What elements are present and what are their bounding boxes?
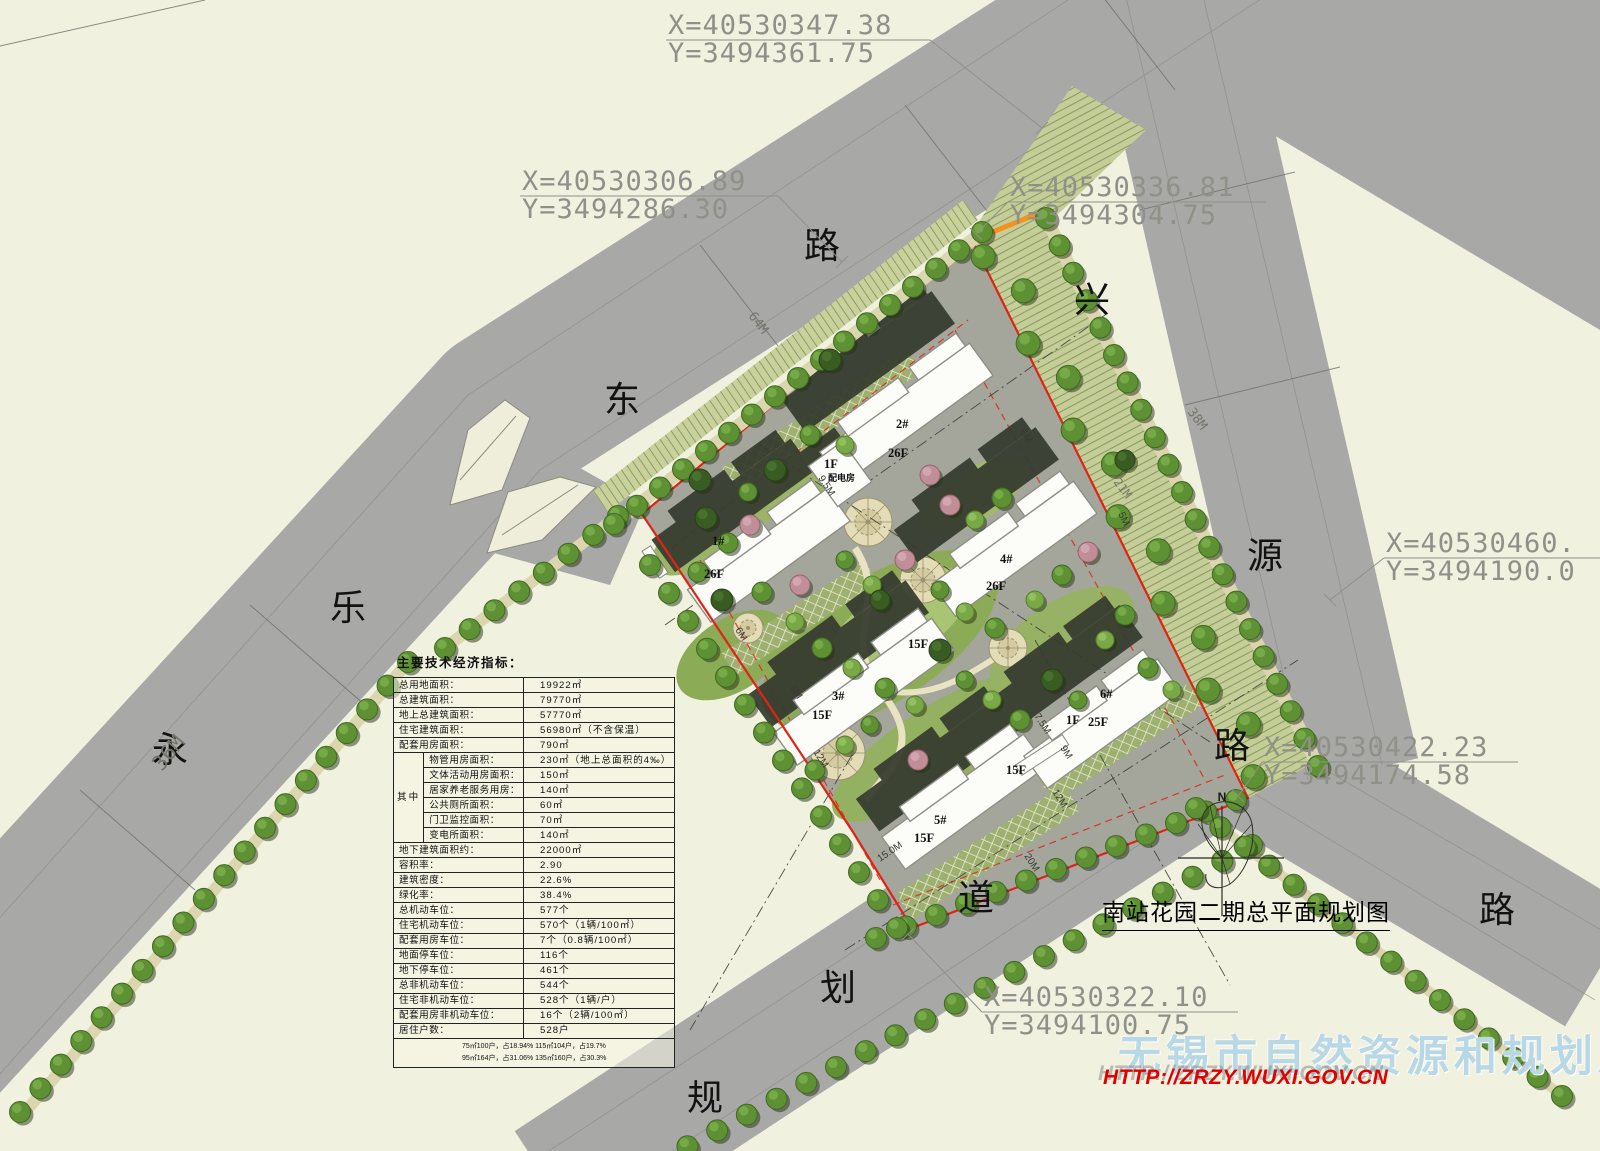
building-6-floors: 25F: [1088, 715, 1109, 729]
table-cell: 住宅机动车位：: [394, 918, 524, 933]
road-char: 路: [1479, 890, 1515, 930]
table-cell: 60㎡: [524, 798, 675, 813]
table-row: 地下建筑面积约：22000㎡: [394, 843, 675, 858]
table-cell: 居住户数：: [394, 1023, 524, 1038]
table-cell: 19922㎡: [524, 678, 675, 693]
table-cell: 57770㎡: [524, 708, 675, 723]
table-row: 配套用房车位：7个（0.8辆/100㎡）: [394, 933, 675, 948]
table-cell: 容积率：: [394, 858, 524, 873]
table-row: 总用地面积：19922㎡: [394, 678, 675, 693]
table-row: 门卫监控面积：70㎡: [394, 813, 675, 828]
coord-y: Y=3494361.75: [668, 38, 875, 69]
road-char: 乐: [330, 588, 366, 628]
road-char: 源: [1247, 536, 1283, 576]
building-6-annex: 1F: [1066, 713, 1080, 727]
table-cell: 门卫监控面积：: [424, 813, 524, 828]
road-char: 规: [687, 1078, 723, 1118]
tree: [1430, 990, 1454, 1014]
coord-y: Y=3494304.75: [1010, 200, 1217, 231]
technical-indicator-panel: 主要技术经济指标： 总用地面积：19922㎡总建筑面积：79770㎡地上总建筑面…: [393, 652, 663, 1068]
tree: [849, 862, 873, 886]
road-char: 兴: [1074, 280, 1110, 320]
table-row: 住宅机动车位：570个（1辆/100㎡）: [394, 918, 675, 933]
road-char: 路: [804, 226, 840, 266]
table-row: 配套用房非机动车位：16个（2辆/100㎡）: [394, 1008, 675, 1023]
tree: [811, 806, 835, 830]
table-cell: 230㎡（地上总面积的4‰）: [524, 753, 675, 768]
table-row: 住宅建筑面积：56980㎡（不含保温）: [394, 723, 675, 738]
table-cell: 配套用房非机动车位：: [394, 1008, 524, 1023]
table-cell: 总非机动车位：: [394, 978, 524, 993]
compass-north-label: N: [1218, 790, 1227, 804]
table-cell: 116个: [524, 948, 675, 963]
table-row: 建筑密度：22.6%: [394, 873, 675, 888]
table-cell: 变电所面积：: [424, 828, 524, 843]
building-4-floors: 26F: [986, 579, 1007, 593]
coord-x: X=40530460.: [1386, 528, 1576, 559]
building-5-floors: 15F: [1006, 763, 1027, 777]
table-cell: 地上总建筑面积：: [394, 708, 524, 723]
tree: [1552, 1086, 1576, 1110]
tree: [1063, 930, 1087, 954]
building-4-label: 4#: [1000, 552, 1013, 566]
table-row: 地面停车位：116个: [394, 948, 675, 963]
table-cell: 公共厕所面积：: [424, 798, 524, 813]
coord-x: X=40530347.38: [668, 10, 892, 41]
table-cell: 75㎡100户，占18.94% 115㎡104户，占19.7%95㎡164户，占…: [394, 1038, 675, 1067]
master-plan-drawing: 东 路 兴 源 路 乐 永 道 划 规 路 36M 64M 38M 21M 9.…: [0, 0, 1600, 1151]
table-row: 公共厕所面积：60㎡: [394, 798, 675, 813]
road-char: 划: [820, 968, 856, 1008]
table-footer-line: 95㎡164户，占31.06% 135㎡160户，占30.3%: [462, 1053, 672, 1065]
building-5-floors: 15F: [914, 831, 935, 845]
tree: [1034, 946, 1058, 970]
building-2-label: 2#: [896, 417, 909, 431]
building-3-floors: 15F: [908, 637, 929, 651]
power-room-floors: 1F: [824, 457, 838, 471]
tree: [678, 610, 702, 634]
tree: [1259, 855, 1283, 879]
table-cell: 79770㎡: [524, 693, 675, 708]
table-cell: 配套用房车位：: [394, 933, 524, 948]
table-row: 文体活动用房面积：150㎡: [394, 768, 675, 783]
building-1-label: 1#: [712, 534, 725, 548]
power-room-label: 配电房: [828, 472, 855, 483]
table-row: 75㎡100户，占18.94% 115㎡104户，占19.7%95㎡164户，占…: [394, 1038, 675, 1067]
table-cell: 总用地面积：: [394, 678, 524, 693]
table-cell: 住宅建筑面积：: [394, 723, 524, 738]
table-cell: 528户: [524, 1023, 675, 1038]
watermark-url: HTTP://ZRZY.WUXI.GOV.CN: [1103, 1066, 1388, 1090]
table-cell: 文体活动用房面积：: [424, 768, 524, 783]
tree: [792, 778, 816, 802]
table-row: 总非机动车位：544个: [394, 978, 675, 993]
table-row: 居住户数：528户: [394, 1023, 675, 1038]
tree: [1356, 932, 1380, 956]
table-cell: 住宅非机动车位：: [394, 993, 524, 1008]
table-cell: 配套用房面积：: [394, 738, 524, 753]
table-cell: 16个（2辆/100㎡）: [524, 1008, 675, 1023]
table-cell: 570个（1辆/100㎡）: [524, 918, 675, 933]
road-char: 东: [604, 380, 640, 420]
building-5-label: 5#: [934, 813, 947, 827]
coord-x: X=40530336.81: [1010, 172, 1234, 203]
table-cell: 2.90: [524, 858, 675, 873]
table-cell: 总机动车位：: [394, 903, 524, 918]
building-6-label: 6#: [1100, 687, 1113, 701]
tree: [830, 834, 854, 858]
table-cell: 577个: [524, 903, 675, 918]
coord-x: X=40530422.23: [1264, 732, 1488, 763]
table-cell: 物管用房面积：: [424, 753, 524, 768]
plan-title: 南站花园二期总平面规划图: [1102, 893, 1390, 931]
table-cell: 7个（0.8辆/100㎡）: [524, 933, 675, 948]
coord-x: X=40530306.89: [522, 166, 746, 197]
table-cell: 绿化率：: [394, 888, 524, 903]
tree: [754, 722, 778, 746]
table-footer-line: 75㎡100户，占18.94% 115㎡104户，占19.7%: [462, 1041, 672, 1053]
coord-y: Y=3494286.30: [522, 194, 729, 225]
table-cell: 56980㎡（不含保温）: [524, 723, 675, 738]
table-row: 其中物管用房面积：230㎡（地上总面积的4‰）: [394, 753, 675, 768]
tree: [1381, 951, 1405, 975]
building-2-floors: 26F: [888, 446, 909, 460]
coord-y: Y=3494174.58: [1264, 760, 1471, 791]
indicator-table: 总用地面积：19922㎡总建筑面积：79770㎡地上总建筑面积：57770㎡住宅…: [393, 677, 675, 1068]
table-row: 配套用房面积：790㎡: [394, 738, 675, 753]
coord-x: X=40530322.10: [984, 982, 1208, 1013]
table-cell: 461个: [524, 963, 675, 978]
table-cell: 建筑密度：: [394, 873, 524, 888]
table-row: 绿化率：38.4%: [394, 888, 675, 903]
table-row: 地下停车位：461个: [394, 963, 675, 978]
table-cell: 地下建筑面积约：: [394, 843, 524, 858]
table-cell: 总建筑面积：: [394, 693, 524, 708]
tree: [1405, 970, 1429, 994]
table-cell: 地下停车位：: [394, 963, 524, 978]
table-cell: 22.6%: [524, 873, 675, 888]
table-cell: 70㎡: [524, 813, 675, 828]
building-3-label: 3#: [832, 689, 845, 703]
indicator-table-title: 主要技术经济指标：: [397, 652, 663, 671]
table-row: 总建筑面积：79770㎡: [394, 693, 675, 708]
table-cell: 38.4%: [524, 888, 675, 903]
table-cell: 其中: [394, 753, 424, 843]
table-cell: 544个: [524, 978, 675, 993]
table-cell: 地面停车位：: [394, 948, 524, 963]
table-row: 地上总建筑面积：57770㎡: [394, 708, 675, 723]
table-cell: 22000㎡: [524, 843, 675, 858]
table-cell: 居家养老服务用房：: [424, 783, 524, 798]
coord-y: Y=3494190.0: [1386, 556, 1576, 587]
table-cell: 528个（1辆/户）: [524, 993, 675, 1008]
table-row: 住宅非机动车位：528个（1辆/户）: [394, 993, 675, 1008]
table-cell: 790㎡: [524, 738, 675, 753]
table-row: 变电所面积：140㎡: [394, 828, 675, 843]
building-3-floors: 15F: [812, 708, 833, 722]
table-cell: 150㎡: [524, 768, 675, 783]
site-plan-page: 东 路 兴 源 路 乐 永 道 划 规 路 36M 64M 38M 21M 9.…: [0, 0, 1600, 1151]
table-row: 居家养老服务用房：140㎡: [394, 783, 675, 798]
building-1-floors: 26F: [704, 567, 725, 581]
table-row: 容积率：2.90: [394, 858, 675, 873]
tree: [1182, 866, 1206, 890]
table-cell: 140㎡: [524, 783, 675, 798]
road-char: 道: [958, 878, 994, 918]
road-char: 路: [1214, 726, 1250, 766]
tree: [659, 582, 683, 606]
table-cell: 140㎡: [524, 828, 675, 843]
table-row: 总机动车位：577个: [394, 903, 675, 918]
